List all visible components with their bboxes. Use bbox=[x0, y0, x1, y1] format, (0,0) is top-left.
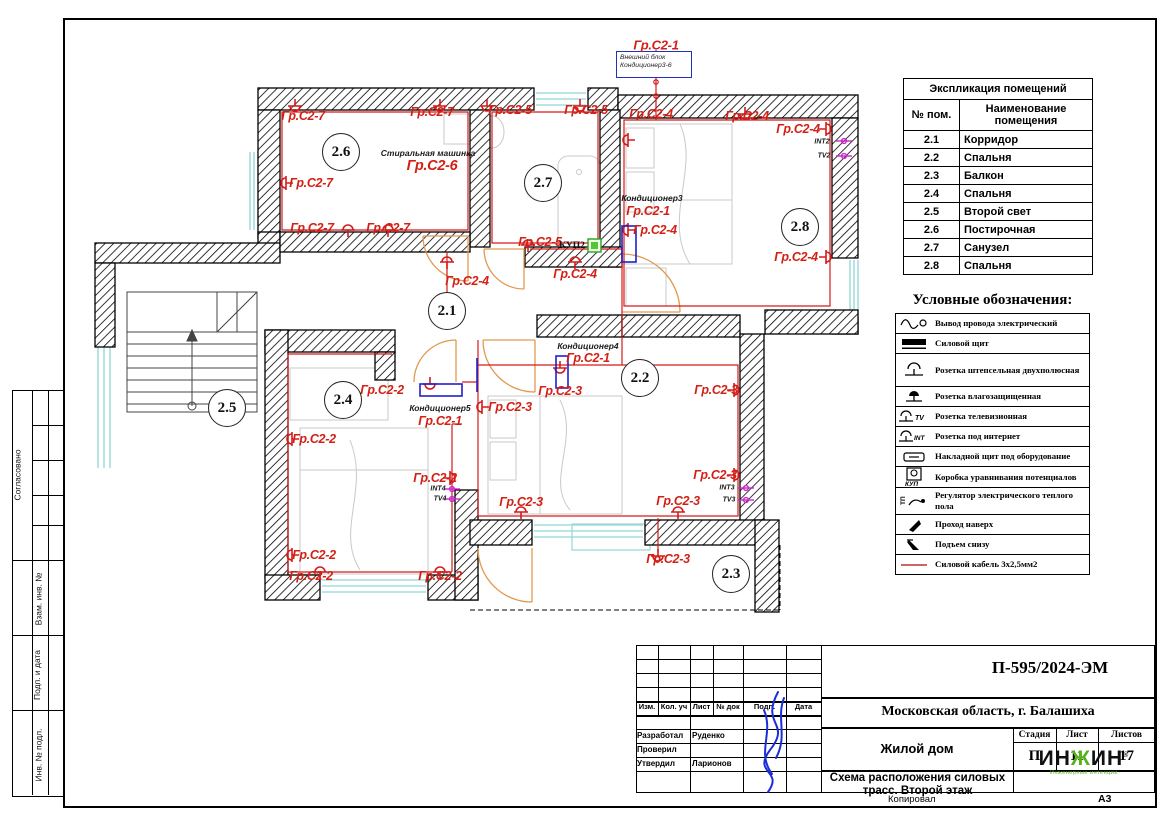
legend-label: Силовой щит bbox=[932, 336, 1089, 351]
table-row: 2.2Спальня bbox=[904, 148, 1092, 166]
legend-label: Накладной щит под оборудование bbox=[932, 449, 1089, 464]
equipment-label: Кондиционер3 bbox=[621, 193, 682, 203]
circuit-group-label: Гр.С2-7 bbox=[410, 105, 453, 119]
explication-col-name: Наименование помещения bbox=[960, 100, 1092, 130]
circuit-group-label: Гр.С2-7 bbox=[290, 221, 333, 235]
stamp-section-label: Подп. и дата bbox=[32, 650, 42, 700]
circuit-group-label: Гр.С2-7 bbox=[281, 109, 324, 123]
circuit-group-label: Гр.С2-4 bbox=[774, 250, 817, 264]
circuit-group-label: Гр.С2-7 bbox=[366, 221, 409, 235]
room-name: Второй свет bbox=[960, 203, 1092, 220]
legend-row: Силовой кабель 3х2,5мм2 bbox=[896, 554, 1089, 574]
sheet-label: Лист bbox=[1056, 730, 1098, 740]
tb-name: Ларионов bbox=[692, 759, 732, 768]
table-row: 2.8Спальня bbox=[904, 256, 1092, 274]
table-row: 2.5Второй свет bbox=[904, 202, 1092, 220]
circuit-group-label: Гр.С2-3 bbox=[499, 495, 542, 509]
tb-col-list: Лист bbox=[690, 702, 713, 715]
room-number-badge: 2.4 bbox=[324, 381, 362, 419]
legend-label: Регулятор электрического теплого пола bbox=[932, 488, 1089, 514]
socket-icon bbox=[896, 361, 932, 379]
explication-title: Экспликация помещений bbox=[904, 79, 1092, 99]
port-label: INT3 bbox=[719, 485, 734, 492]
port-label: TV2 bbox=[818, 153, 831, 160]
circuit-group-label: Гр.С2-6 bbox=[407, 158, 458, 174]
power-panel-icon bbox=[896, 337, 932, 351]
circuit-group-label: Гр.С2-2 bbox=[360, 383, 403, 397]
equipment-label: Стиральная машинка bbox=[381, 148, 476, 158]
port-label: INT4 bbox=[430, 486, 445, 493]
power-cable-icon bbox=[896, 561, 932, 569]
logo-text: ИН bbox=[1039, 747, 1071, 770]
room-number-badge: 2.7 bbox=[524, 164, 562, 202]
socket-tv-icon: TV bbox=[896, 409, 932, 425]
company-logo: ИНЖИН® Инженерные интенции bbox=[1016, 748, 1152, 776]
legend-row: TV Розетка телевизионная bbox=[896, 406, 1089, 426]
port-label: TV3 bbox=[723, 497, 736, 504]
equipment-label: Кондиционер5 bbox=[409, 403, 470, 413]
tb-role: Проверил bbox=[637, 745, 677, 754]
stage-label: Стадия bbox=[1013, 730, 1056, 740]
circuit-group-label: Гр.С2-2 bbox=[418, 569, 461, 583]
tb-col-doc: № док bbox=[713, 702, 743, 715]
document-code: П-595/2024-ЭМ bbox=[950, 658, 1150, 678]
legend-row: Подъем снизу bbox=[896, 534, 1089, 554]
room-num: 2.3 bbox=[904, 167, 960, 184]
stamp-agreed-label: Согласовано bbox=[13, 449, 23, 500]
room-name: Корридор bbox=[960, 131, 1092, 148]
room-name: Спальня bbox=[960, 185, 1092, 202]
table-row: 2.7Санузел bbox=[904, 238, 1092, 256]
circuit-group-label: Гр.С2-1 bbox=[633, 38, 678, 53]
legend-label: Розетка влагозащищенная bbox=[932, 389, 1089, 404]
legend-row: Розетка штепсельная двухполюсная bbox=[896, 353, 1089, 386]
legend-row: INT Розетка под интернет bbox=[896, 426, 1089, 446]
table-row: 2.1Корридор bbox=[904, 130, 1092, 148]
port-label: TV4 bbox=[434, 496, 447, 503]
signature bbox=[740, 688, 800, 800]
project-location: Московская область, г. Балашиха bbox=[821, 704, 1155, 720]
table-row: 2.3Балкон bbox=[904, 166, 1092, 184]
legend-label: Силовой кабель 3х2,5мм2 bbox=[932, 557, 1089, 572]
legend-label: Розетка под интернет bbox=[932, 429, 1089, 444]
room-number-badge: 2.8 bbox=[781, 208, 819, 246]
logo-text2: ИН bbox=[1091, 747, 1123, 770]
room-name: Спальня bbox=[960, 149, 1092, 166]
circuit-group-label: Гр.С2-1 bbox=[626, 204, 669, 218]
circuit-group-label: Гр.С2-5 bbox=[488, 103, 531, 117]
rise-below-icon bbox=[896, 538, 932, 552]
room-num: 2.6 bbox=[904, 221, 960, 238]
legend-label: Розетка телевизионная bbox=[932, 409, 1089, 424]
stamp-section-label: Взам. инв. № bbox=[33, 573, 43, 626]
drawing-page: { "stamp_left": { "agreed": "Согласовано… bbox=[0, 0, 1166, 816]
legend-row: Вывод провода электрический bbox=[896, 314, 1089, 333]
circuit-group-label: Гр.С2-3 bbox=[488, 400, 531, 414]
circuit-group-label: Гр.С2-4 bbox=[553, 267, 596, 281]
circuit-group-label: Гр.С2-5 bbox=[564, 103, 607, 117]
room-num: 2.1 bbox=[904, 131, 960, 148]
circuit-group-label: Гр.С2-3 bbox=[694, 383, 737, 397]
tb-role: Утвердил bbox=[637, 759, 675, 768]
circuit-group-label: Гр.С2-3 bbox=[538, 384, 581, 398]
circuit-group-label: Гр.С2-3 bbox=[646, 552, 689, 566]
circuit-group-label: Гр.С2-2 bbox=[413, 471, 456, 485]
circuit-group-label: Гр.С2-1 bbox=[566, 351, 609, 365]
circuit-group-label: Гр.С2-3 bbox=[656, 494, 699, 508]
room-number-badge: 2.1 bbox=[428, 292, 466, 330]
room-num: 2.5 bbox=[904, 203, 960, 220]
logo-subtitle: Инженерные интенции bbox=[1016, 770, 1152, 776]
legend-row: Розетка влагозащищенная bbox=[896, 386, 1089, 406]
circuit-group-label: Гр.С2-2 bbox=[289, 569, 332, 583]
legend: Условные обозначения: Вывод провода элек… bbox=[895, 292, 1090, 575]
svg-text:TV: TV bbox=[915, 415, 925, 422]
socket-waterproof-icon bbox=[896, 389, 932, 405]
legend-title: Условные обозначения: bbox=[895, 292, 1090, 309]
room-name: Санузел bbox=[960, 239, 1092, 256]
legend-label: Подъем снизу bbox=[932, 537, 1089, 552]
socket-internet-icon: INT bbox=[896, 429, 932, 445]
legend-row: ТП Регулятор электрического теплого пола bbox=[896, 487, 1089, 514]
pass-up-icon bbox=[896, 518, 932, 532]
legend-label: Розетка штепсельная двухполюсная bbox=[932, 363, 1089, 378]
sheets-label: Листов bbox=[1098, 730, 1155, 740]
circuit-group-label: Гр.С2-7 bbox=[289, 176, 332, 190]
room-number-badge: 2.6 bbox=[322, 133, 360, 171]
room-num: 2.7 bbox=[904, 239, 960, 256]
svg-text:INT: INT bbox=[914, 435, 926, 442]
circuit-group-label: Гр.С2-2 bbox=[292, 432, 335, 446]
room-num: 2.2 bbox=[904, 149, 960, 166]
equipment-label: Кондиционер4 bbox=[557, 341, 618, 351]
explication-col-num: № пом. bbox=[904, 100, 960, 130]
tb-role: Разработал bbox=[637, 731, 683, 740]
room-number-badge: 2.2 bbox=[621, 359, 659, 397]
circuit-group-label: Гр.С2-4 bbox=[776, 122, 819, 136]
table-row: 2.6Постирочная bbox=[904, 220, 1092, 238]
legend-label: Коробка уравнивания потенциалов bbox=[932, 470, 1089, 485]
legend-row: Проход наверх bbox=[896, 514, 1089, 534]
room-number-badge: 2.3 bbox=[712, 555, 750, 593]
tb-col-izm: Изм. bbox=[636, 702, 658, 715]
tb-col-kol: Кол. уч bbox=[658, 702, 690, 715]
circuit-group-label: Гр.С2-3 bbox=[693, 468, 736, 482]
surface-panel-icon bbox=[896, 451, 932, 463]
legend-row: КУП Коробка уравнивания потенциалов bbox=[896, 466, 1089, 487]
kup-box-icon: КУП bbox=[896, 467, 932, 487]
legend-row: Силовой щит bbox=[896, 333, 1089, 353]
legend-label: Вывод провода электрический bbox=[932, 316, 1089, 331]
circuit-group-label: Гр.С2-4 bbox=[633, 223, 676, 237]
floor-heating-regulator-icon: ТП bbox=[896, 492, 932, 510]
room-name: Спальня bbox=[960, 257, 1092, 274]
object-name: Жилой дом bbox=[821, 741, 1013, 756]
circuit-group-label: Гр.С2-2 bbox=[292, 548, 335, 562]
room-name: Постирочная bbox=[960, 221, 1092, 238]
circuit-group-label: Гр.С2-4 bbox=[629, 107, 672, 121]
format-label: А3 bbox=[1098, 793, 1111, 805]
logo-zh: Ж bbox=[1071, 747, 1091, 770]
wire-output-icon bbox=[896, 317, 932, 331]
legend-label: Проход наверх bbox=[932, 517, 1089, 532]
legend-row: Накладной щит под оборудование bbox=[896, 446, 1089, 466]
circuit-group-label: Гр.С2-4 bbox=[725, 109, 768, 123]
room-number-badge: 2.5 bbox=[208, 389, 246, 427]
room-num: 2.4 bbox=[904, 185, 960, 202]
table-row: 2.4Спальня bbox=[904, 184, 1092, 202]
copied-label: Копировал bbox=[888, 794, 936, 805]
logo-reg: ® bbox=[1123, 752, 1129, 759]
room-explication-table: Экспликация помещений № пом. Наименовани… bbox=[903, 78, 1093, 275]
tb-name: Руденко bbox=[692, 731, 725, 740]
svg-text:ТП: ТП bbox=[900, 496, 907, 505]
port-label: INT2 bbox=[814, 139, 829, 146]
kup-label: КУП2 bbox=[559, 241, 585, 251]
circuit-group-label: Гр.С2-5 bbox=[518, 235, 561, 249]
stamp-section-label: Инв. № подл. bbox=[33, 729, 43, 782]
svg-text:КУП: КУП bbox=[905, 481, 918, 487]
room-num: 2.8 bbox=[904, 257, 960, 274]
circuit-group-label: Гр.С2-1 bbox=[418, 414, 461, 428]
circuit-group-label: Гр.С2-4 bbox=[445, 274, 488, 288]
room-name: Балкон bbox=[960, 167, 1092, 184]
